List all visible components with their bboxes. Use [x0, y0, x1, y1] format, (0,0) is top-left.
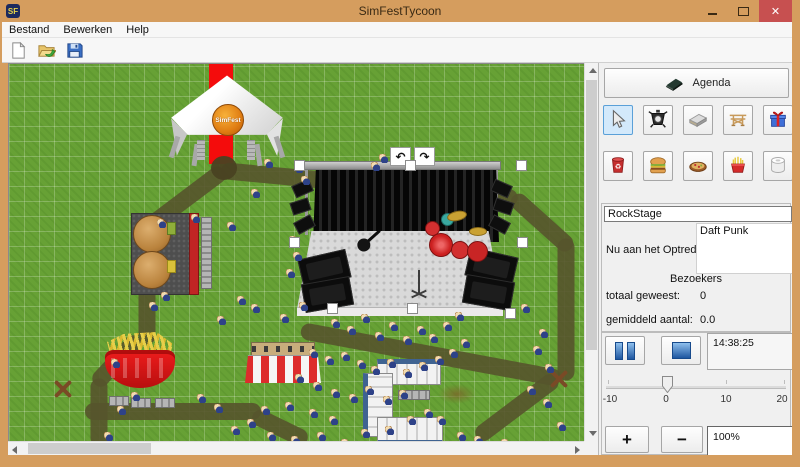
clock-display: 14:38:25: [707, 333, 800, 370]
visitor: [379, 154, 388, 163]
toilet-tool-button[interactable]: [763, 151, 793, 181]
dead-tree: [51, 377, 75, 401]
fries-icon: [727, 154, 749, 179]
visitor: [111, 359, 120, 368]
visitor: [455, 312, 464, 321]
minimize-icon: [708, 13, 717, 15]
bench: [155, 398, 175, 408]
visitor: [251, 189, 260, 198]
spotlight: [289, 197, 311, 215]
zoom-in-button[interactable]: +: [605, 426, 649, 453]
visitor: [387, 359, 396, 368]
visitor: [331, 389, 340, 398]
minimize-button[interactable]: [697, 0, 728, 22]
visitor: [375, 332, 384, 341]
visitor: [264, 159, 273, 168]
new-file-button[interactable]: [6, 39, 30, 61]
maximize-icon: [738, 7, 749, 16]
gift-icon: [767, 108, 789, 133]
menu-item-bewerken[interactable]: Bewerken: [56, 24, 119, 36]
visitor: [293, 252, 302, 261]
visitor: [217, 316, 226, 325]
visitor: [349, 394, 358, 403]
visitor: [341, 352, 350, 361]
selection-handle[interactable]: [289, 237, 300, 248]
playback-controls: 14:38:25 -10 0 10 20 + − 100%: [601, 331, 791, 455]
bench: [201, 217, 212, 289]
visitor: [227, 222, 236, 231]
visitor: [317, 432, 326, 441]
visitor: [157, 219, 166, 228]
selection-handle[interactable]: [505, 308, 516, 319]
burger-tool-button[interactable]: [643, 151, 673, 181]
visitor: [389, 322, 398, 331]
horizontal-scrollbar[interactable]: [8, 441, 584, 456]
drum-kit: [421, 211, 493, 271]
close-button[interactable]: ✕: [759, 0, 792, 22]
visitor: [361, 314, 370, 323]
visitor: [449, 349, 458, 358]
visitor: [361, 429, 370, 438]
toilet-icon: [767, 154, 789, 179]
visitor: [403, 369, 412, 378]
visitor: [295, 374, 304, 383]
visitor: [231, 426, 240, 435]
pause-icon: [615, 342, 635, 360]
bench: [109, 396, 129, 406]
visitor: [527, 386, 536, 395]
slider-label-0: 0: [663, 394, 669, 405]
slider-label-min: -10: [603, 394, 617, 405]
visitor: [197, 394, 206, 403]
visitor: [557, 422, 566, 431]
visitor: [419, 362, 428, 371]
horizontal-scrollbar-thumb[interactable]: [28, 443, 151, 454]
visitor: [357, 360, 366, 369]
slider-label-10: 10: [720, 394, 731, 405]
visitor: [533, 346, 542, 355]
visitor: [347, 326, 356, 335]
frame-tool-button[interactable]: [723, 105, 753, 135]
scroll-left-icon[interactable]: [12, 446, 17, 454]
visitor: [407, 416, 416, 425]
visitor: [286, 269, 295, 278]
menubar: Bestand Bewerken Help: [2, 22, 792, 38]
agenda-button[interactable]: Agenda: [604, 68, 789, 98]
now-playing-list[interactable]: Daft Punk: [696, 223, 796, 274]
visitor: [539, 329, 548, 338]
agenda-label: Agenda: [693, 77, 731, 89]
mic-stand: [409, 268, 429, 300]
maximize-button[interactable]: [728, 0, 759, 22]
save-file-icon: [65, 41, 84, 60]
new-file-icon: [9, 41, 28, 60]
redo-button[interactable]: ↷: [414, 147, 435, 166]
frame-icon: [727, 108, 749, 133]
pause-button[interactable]: [605, 336, 645, 365]
select-tool-button[interactable]: [603, 105, 633, 135]
visitor: [461, 339, 470, 348]
select-icon: [607, 108, 629, 133]
visitor: [543, 399, 552, 408]
visitor: [191, 214, 200, 223]
scroll-down-icon[interactable]: [589, 431, 597, 436]
visitor: [301, 176, 310, 185]
burger-icon: [647, 154, 669, 179]
visitor: [149, 302, 158, 311]
vertical-scrollbar-thumb[interactable]: [586, 80, 597, 350]
visitor: [424, 409, 433, 418]
visitor: [437, 416, 446, 425]
visitor: [331, 319, 340, 328]
visitor: [457, 432, 466, 441]
visitor: [237, 296, 246, 305]
save-file-button[interactable]: [62, 39, 86, 61]
tent-gate-right: [247, 140, 255, 160]
food-icon: [687, 154, 709, 179]
food-tool-button[interactable]: [683, 151, 713, 181]
visitor: [329, 416, 338, 425]
visitor: [299, 302, 308, 311]
visitor: [521, 304, 530, 313]
now-playing-item[interactable]: Daft Punk: [700, 225, 792, 237]
menu-item-help[interactable]: Help: [119, 24, 156, 36]
spotlight-tool-button[interactable]: [643, 105, 673, 135]
menu-item-bestand[interactable]: Bestand: [2, 24, 56, 36]
trash-icon: ♻: [607, 154, 629, 179]
visitor: [429, 334, 438, 343]
vertical-scrollbar[interactable]: [584, 63, 599, 441]
visitors-header: Bezoekers: [602, 273, 790, 285]
slider-label-max: 20: [776, 394, 787, 405]
agenda-book-icon: [663, 72, 685, 94]
fries-tool-button[interactable]: [723, 151, 753, 181]
footpath-segment: [558, 239, 575, 381]
titlebar: SF SimFestTycoon ✕: [0, 0, 800, 22]
selection-handle[interactable]: [516, 160, 527, 171]
tent-gate-left: [197, 140, 205, 160]
stage-info-box: Nu aan het Optreden: Daft Punk Bezoekers…: [601, 203, 791, 333]
visitor: [309, 349, 318, 358]
visitor: [247, 419, 256, 428]
visitor: [385, 426, 394, 435]
visitor: [214, 404, 223, 413]
visitor: [313, 382, 322, 391]
dirt-patch: [438, 384, 476, 404]
scroll-up-icon[interactable]: [589, 68, 597, 73]
visitor: [371, 162, 380, 171]
visitor: [280, 314, 289, 323]
entrance-tent[interactable]: SimFest: [169, 74, 285, 166]
selection-handle[interactable]: [517, 237, 528, 248]
speed-slider-track[interactable]: [606, 386, 786, 389]
visitor: [285, 402, 294, 411]
visitor: [365, 386, 374, 395]
toolbar: [2, 38, 792, 63]
side-panel: Agenda ♻ Nu aan het Optreden: Daft Punk …: [598, 63, 793, 455]
gift-tool-button[interactable]: [763, 105, 793, 135]
spotlight-icon: [647, 108, 669, 133]
stage-icon: [687, 108, 709, 133]
svg-text:♻: ♻: [615, 162, 622, 171]
visitor: [251, 304, 260, 313]
trash-tool-button[interactable]: ♻: [603, 151, 633, 181]
stop-button[interactable]: [661, 336, 701, 365]
stage-name-input[interactable]: [604, 206, 792, 222]
open-file-icon: [37, 41, 56, 60]
visitor: [417, 326, 426, 335]
total-visitors-value: 0: [700, 290, 706, 302]
festival-map-canvas[interactable]: SimFest ↶ ↷: [8, 63, 585, 442]
simfest-logo: SimFest: [212, 104, 244, 136]
average-visitors-label: gemiddeld aantal:: [606, 314, 693, 326]
stage-tool-button[interactable]: [683, 105, 713, 135]
selection-handle[interactable]: [294, 160, 305, 171]
visitor: [399, 390, 408, 399]
footpath-segment: [249, 407, 310, 442]
stop-icon: [672, 342, 691, 359]
visitor: [435, 356, 444, 365]
visitor: [131, 392, 140, 401]
visitor: [261, 406, 270, 415]
selection-handle[interactable]: [327, 303, 338, 314]
visitor: [403, 336, 412, 345]
selection-handle[interactable]: [405, 160, 416, 171]
scroll-right-icon[interactable]: [575, 446, 580, 454]
visitor: [443, 322, 452, 331]
selection-handle[interactable]: [407, 303, 418, 314]
visitor: [545, 364, 554, 373]
visitor: [104, 432, 113, 441]
window-title: SimFestTycoon: [0, 4, 800, 18]
visitor: [383, 396, 392, 405]
visitor: [325, 356, 334, 365]
visitor: [309, 409, 318, 418]
speed-slider-thumb[interactable]: [662, 376, 673, 393]
visitor: [117, 406, 126, 415]
average-visitors-value: 0.0: [700, 314, 715, 326]
open-file-button[interactable]: [34, 39, 58, 61]
total-visitors-label: totaal geweest:: [606, 290, 680, 302]
visitor: [371, 366, 380, 375]
visitor: [161, 292, 170, 301]
zoom-out-button[interactable]: −: [661, 426, 703, 453]
visitor: [267, 432, 276, 441]
